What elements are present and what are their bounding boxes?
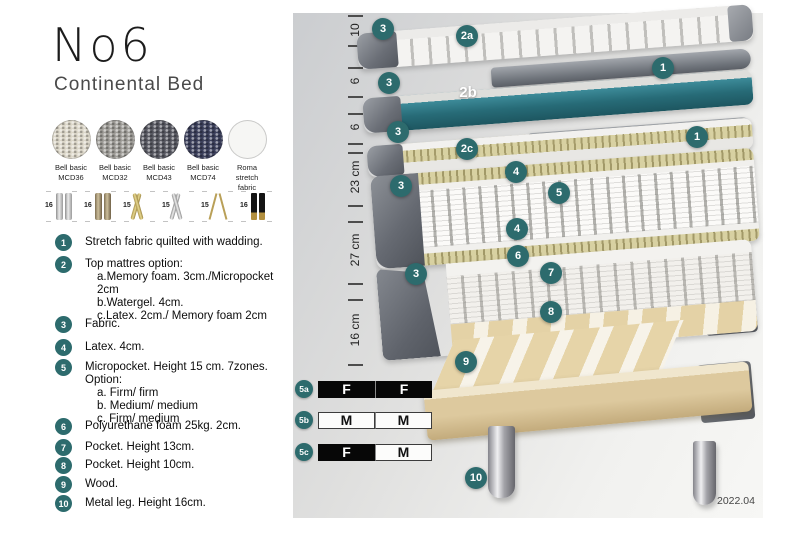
cylinder-bronze-legs-icon — [95, 193, 111, 221]
leg-height: 15 — [123, 202, 131, 209]
fabric-swatch-image — [96, 120, 135, 159]
feature-item-4: 4 Latex. 4cm. — [55, 339, 295, 356]
firmness-cell: M — [375, 412, 432, 429]
product-title: No6 — [52, 18, 153, 72]
swatch-bell-basic-mcd74: Bell basicMCD74 — [182, 120, 224, 192]
feature-item-3: 3 Fabric. — [55, 316, 295, 333]
cylinder-black-gold-legs-icon — [251, 193, 265, 221]
dimension-tick — [348, 152, 363, 154]
callout-3-mattress: 3 — [390, 175, 412, 197]
firmness-cell: F — [375, 381, 432, 398]
firmness-row-5c: 5c F M — [295, 443, 432, 461]
callout-3-2c: 3 — [387, 121, 409, 143]
dimension-label-23cm: 23 cm — [348, 155, 362, 199]
fabric-swatches: Bell basicMCD36 Bell basicMCD32 Bell bas… — [50, 120, 268, 192]
callout-1-bottom: 1 — [686, 126, 708, 148]
feature-text: Stretch fabric quilted with wadding. — [85, 234, 263, 249]
firmness-row-5a: 5a F F — [295, 380, 432, 398]
leg-option-cylinder-bronze: 16 — [83, 188, 118, 226]
feature-number-badge: 8 — [55, 457, 72, 474]
swatch-label: Roma — [237, 163, 257, 172]
firmness-cell: F — [318, 444, 375, 461]
leg-option-hairpin-gold: 15 — [200, 188, 235, 226]
feature-text: Fabric. — [85, 316, 120, 331]
feature-number-badge: 7 — [55, 439, 72, 456]
feature-item-9: 9 Wood. — [55, 476, 295, 493]
leg-option-cylinder-black-gold: 16 — [239, 188, 274, 226]
metal-leg-front — [488, 426, 515, 498]
feature-item-8: 8 Pocket. Height 10cm. — [55, 457, 295, 474]
product-infographic: No6 Continental Bed Bell basicMCD36 Bell… — [0, 0, 800, 533]
callout-2c: 2c — [456, 138, 478, 160]
firmness-cell: F — [318, 381, 375, 398]
feature-number-badge: 10 — [55, 495, 72, 512]
callout-9: 9 — [455, 351, 477, 373]
callout-4-top: 4 — [505, 161, 527, 183]
dimension-tick — [348, 221, 363, 223]
leg-height: 15 — [201, 202, 209, 209]
feature-item-1: 1 Stretch fabric quilted with wadding. — [55, 234, 295, 251]
callout-3-topper: 3 — [372, 18, 394, 40]
callout-10: 10 — [465, 467, 487, 489]
firmness-bar: M M — [318, 412, 432, 429]
feature-text: Micropocket. Height 15 cm. 7zones. Optio… — [85, 359, 295, 426]
callout-3-2b: 3 — [378, 72, 400, 94]
leg-option-crossed-gold: 15 — [122, 188, 157, 226]
firmness-cell: M — [375, 444, 432, 461]
dimension-tick — [348, 205, 363, 207]
callout-5: 5 — [548, 182, 570, 204]
firmness-row-badge: 5a — [295, 380, 313, 398]
feature-number-badge: 2 — [55, 256, 72, 273]
feature-number-badge: 4 — [55, 339, 72, 356]
firmness-bar: F M — [318, 444, 432, 461]
fabric-swatch-image — [140, 120, 179, 159]
dimension-tick — [348, 143, 363, 145]
leg-height: 15 — [162, 202, 170, 209]
feature-item-6: 6 Polyurethane foam 25kg. 2cm. — [55, 418, 295, 435]
callout-2a: 2a — [456, 25, 478, 47]
feature-text: Metal leg. Height 16cm. — [85, 495, 206, 510]
dimension-label-27cm: 27 cm — [348, 228, 362, 272]
feature-sub-option: a. Firm/ firm — [97, 387, 295, 400]
leg-option-cylinder-silver: 16 — [44, 188, 79, 226]
feature-sub-option: b. Medium/ medium — [97, 400, 295, 413]
dimension-tick — [348, 364, 363, 366]
feature-number-badge: 3 — [55, 316, 72, 333]
feature-text: Latex. 4cm. — [85, 339, 144, 354]
swatch-label: Bell basic — [143, 163, 175, 172]
feature-item-2: 2 Top mattres option: a.Memory foam. 3cm… — [55, 256, 295, 323]
feature-item-5: 5 Micropocket. Height 15 cm. 7zones. Opt… — [55, 359, 295, 426]
leg-height: 16 — [84, 202, 92, 209]
topper-fabric-cap-right — [727, 4, 754, 42]
swatch-bell-basic-mcd32: Bell basicMCD32 — [94, 120, 136, 192]
firmness-bar: F F — [318, 381, 432, 398]
dimension-label-16cm: 16 cm — [348, 308, 362, 352]
cylinder-silver-legs-icon — [56, 193, 72, 221]
swatch-bell-basic-mcd43: Bell basicMCD43 — [138, 120, 180, 192]
swatch-label: Bell basic — [55, 163, 87, 172]
callout-1-top: 1 — [652, 57, 674, 79]
swatch-label: Bell basic — [99, 163, 131, 172]
callout-6: 6 — [507, 245, 529, 267]
feature-number-badge: 1 — [55, 234, 72, 251]
crossed-silver-legs-icon — [173, 193, 179, 221]
firmness-row-badge: 5c — [295, 443, 313, 461]
crossed-gold-legs-icon — [134, 193, 140, 221]
feature-number-badge: 5 — [55, 359, 72, 376]
layer-2c-fabric-cap — [366, 144, 404, 178]
fabric-swatch-image — [184, 120, 223, 159]
feature-text: Wood. — [85, 476, 118, 491]
firmness-row-badge: 5b — [295, 411, 313, 429]
leg-option-crossed-silver: 15 — [161, 188, 196, 226]
bed-exploded-diagram: 10 6 6 23 cm 27 cm 16 cm — [293, 13, 763, 518]
label-2b: 2b — [443, 84, 493, 101]
fabric-swatch-image — [228, 120, 267, 159]
feature-number-badge: 6 — [55, 418, 72, 435]
firmness-row-5b: 5b M M — [295, 411, 432, 429]
feature-item-10: 10 Metal leg. Height 16cm. — [55, 495, 295, 512]
feature-sub-option: a.Memory foam. 3cm./Micropocket 2cm — [97, 271, 295, 297]
swatch-roma-stretch-fabric: Romastretch fabric — [226, 120, 268, 192]
version-date: 2022.04 — [717, 495, 755, 507]
hairpin-legs-icon — [212, 193, 224, 221]
callout-4-bottom: 4 — [506, 218, 528, 240]
leg-options: 16 16 15 15 15 16 — [44, 188, 274, 226]
dimension-tick — [348, 283, 363, 285]
feature-text: Pocket. Height 10cm. — [85, 457, 194, 472]
feature-text: Polyurethane foam 25kg. 2cm. — [85, 418, 241, 433]
dimension-tick — [348, 299, 363, 301]
swatch-label: Bell basic — [187, 163, 219, 172]
feature-sub-option: b.Watergel. 4cm. — [97, 297, 295, 310]
firmness-cell: M — [318, 412, 375, 429]
swatch-bell-basic-mcd36: Bell basicMCD36 — [50, 120, 92, 192]
feature-text: Top mattres option: a.Memory foam. 3cm./… — [85, 256, 295, 323]
leg-height: 16 — [45, 202, 53, 209]
feature-text: Pocket. Height 13cm. — [85, 439, 194, 454]
fabric-swatch-image — [52, 120, 91, 159]
callout-3-box: 3 — [405, 263, 427, 285]
product-subtitle: Continental Bed — [54, 74, 204, 96]
metal-leg-right — [693, 441, 716, 505]
callout-7: 7 — [540, 262, 562, 284]
leg-height: 16 — [240, 202, 248, 209]
callout-8: 8 — [540, 301, 562, 323]
feature-number-badge: 9 — [55, 476, 72, 493]
dimension-tick — [348, 96, 363, 98]
feature-item-7: 7 Pocket. Height 13cm. — [55, 439, 295, 456]
